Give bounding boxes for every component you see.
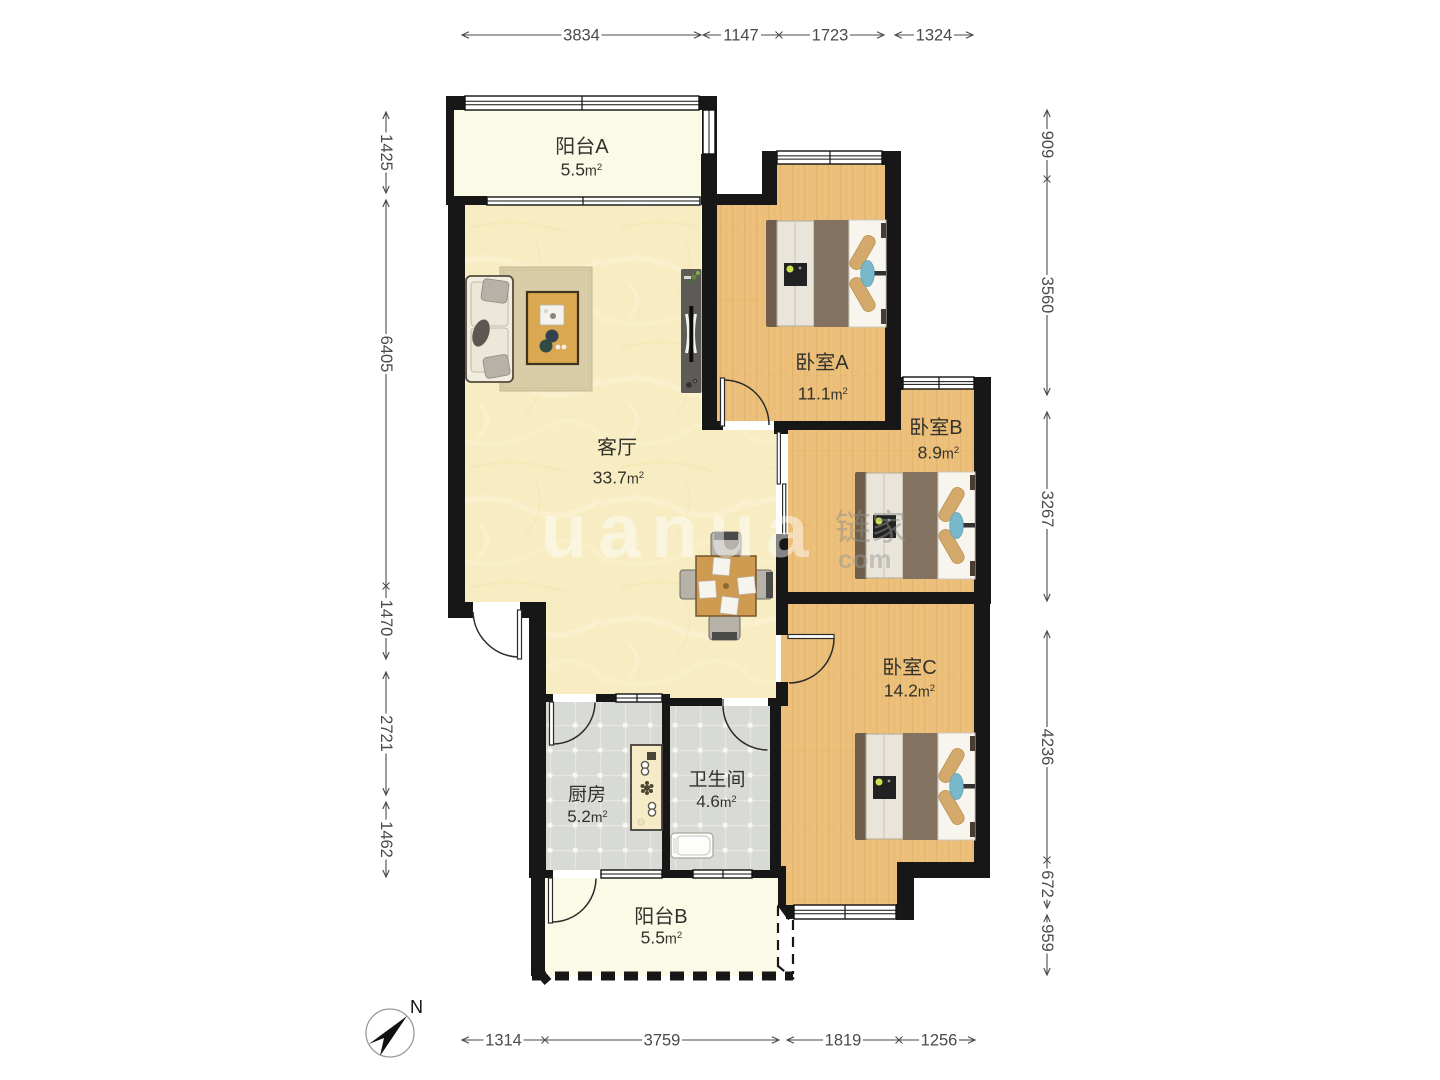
svg-text:3759: 3759 (644, 1032, 681, 1050)
svg-text:B: B (674, 906, 687, 928)
svg-text:5.5m2: 5.5m2 (561, 159, 603, 179)
svg-text:909: 909 (1038, 131, 1056, 159)
svg-text:N: N (410, 997, 423, 1017)
svg-text:672: 672 (1038, 870, 1056, 898)
svg-text:1324: 1324 (916, 27, 953, 45)
svg-text:1819: 1819 (825, 1032, 862, 1050)
svg-text:959: 959 (1038, 924, 1056, 952)
svg-text:8.9m2: 8.9m2 (918, 442, 960, 462)
svg-text:5.2m2: 5.2m2 (567, 807, 607, 826)
svg-text:A: A (595, 136, 609, 158)
svg-text:A: A (835, 352, 849, 374)
svg-text:uanua: uanua (541, 489, 820, 574)
svg-text:C: C (922, 657, 936, 679)
svg-text:1723: 1723 (812, 27, 849, 45)
svg-text:2721: 2721 (377, 715, 395, 752)
svg-text:3834: 3834 (563, 27, 600, 45)
svg-text:5.5m2: 5.5m2 (641, 927, 683, 947)
svg-text:3560: 3560 (1038, 277, 1056, 314)
svg-text:4.6m2: 4.6m2 (696, 792, 736, 811)
svg-text:1462: 1462 (377, 821, 395, 858)
svg-text:1147: 1147 (723, 27, 758, 45)
svg-text:1256: 1256 (921, 1032, 958, 1050)
svg-text:4236: 4236 (1038, 729, 1056, 766)
svg-text:1425: 1425 (377, 134, 395, 171)
svg-text:6405: 6405 (377, 336, 395, 373)
svg-text:3267: 3267 (1038, 491, 1056, 528)
svg-text:1314: 1314 (485, 1032, 522, 1050)
svg-text:1470: 1470 (377, 600, 395, 637)
svg-text:B: B (949, 417, 962, 439)
svg-text:com: com (838, 544, 891, 574)
